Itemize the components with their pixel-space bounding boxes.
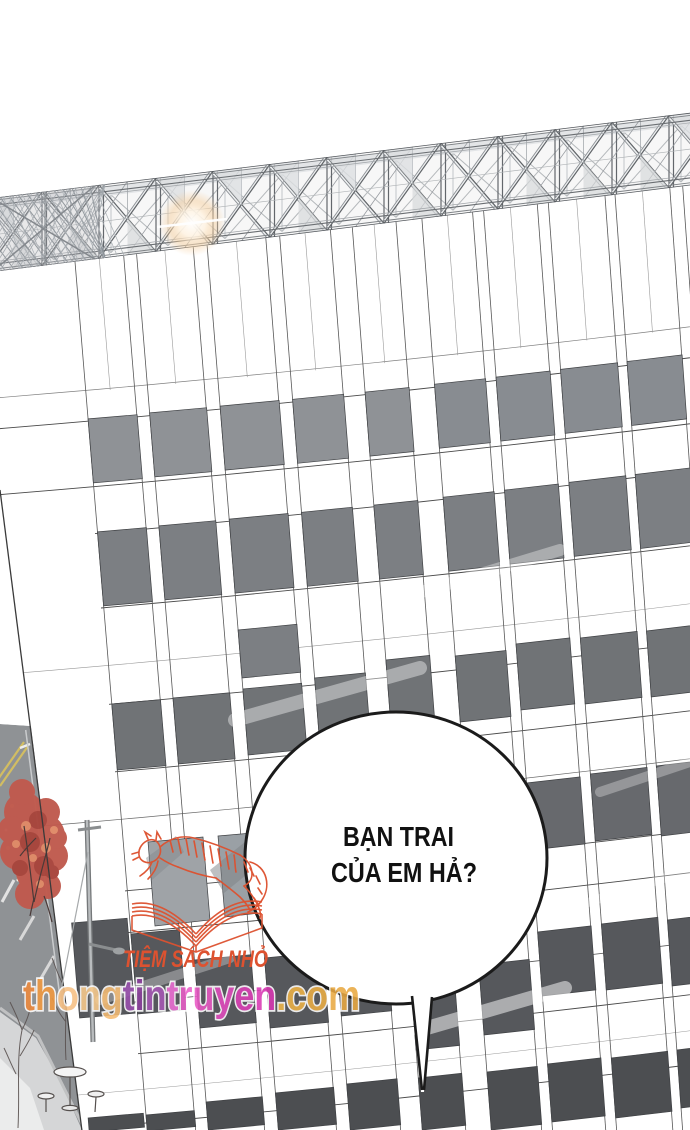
svg-text:TIỆM SÁCH NHỎ: TIỆM SÁCH NHỎ [123, 945, 268, 973]
svg-text:thongtintruyen.com: thongtintruyen.com [23, 972, 360, 1020]
svg-text:CỦA EM HẢ?: CỦA EM HẢ? [331, 856, 477, 888]
svg-text:BẠN TRAI: BẠN TRAI [343, 821, 454, 852]
